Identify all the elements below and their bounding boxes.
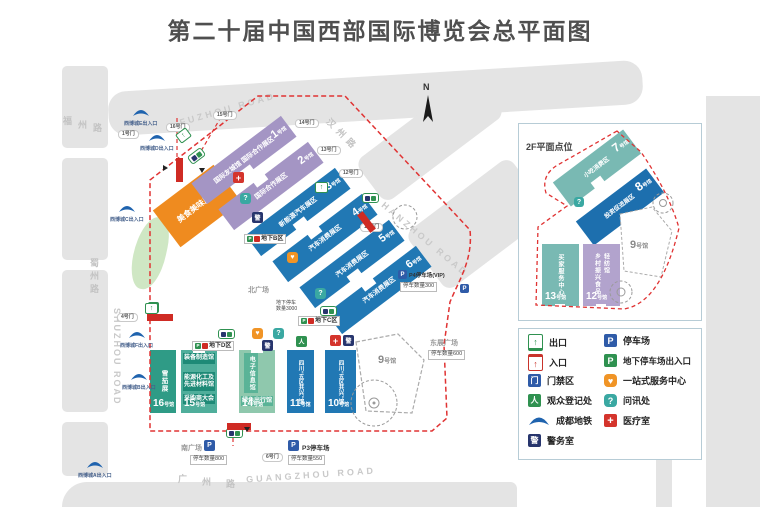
roundabout-center-dot: [373, 402, 376, 405]
hall-14-number: 14号馆: [242, 393, 263, 411]
road-guangzhou-cn: 州: [202, 475, 211, 488]
legend-registration-label: 观众登记处: [547, 394, 592, 407]
metro-logo-icon: [132, 108, 150, 117]
hall-9-outline: [356, 334, 424, 413]
gate-1: 1号门: [118, 130, 139, 139]
hall-16-number: 16号馆: [153, 393, 174, 411]
page-title: 第二十届中国西部国际博览会总平面图: [0, 12, 760, 46]
access-control-pill: [218, 329, 235, 339]
legend-police-label: 警务室: [547, 434, 574, 447]
police-icon: 警: [262, 340, 273, 351]
underground-zone-c-label: 地下C区: [315, 318, 337, 324]
metro-exit-d-label: 西博城D出入口: [140, 147, 174, 152]
legend-underground-parking-label: 地下停车场出入口: [623, 355, 691, 367]
police-icon: 警: [252, 212, 263, 223]
parking-icon: P: [398, 270, 407, 279]
medical-icon: +: [604, 414, 617, 427]
hall-14: 电子信息馆 绿色出行馆 14号馆: [239, 350, 275, 413]
hall-11-no: 11: [290, 398, 301, 409]
legend-access-control: 门 门禁区: [528, 374, 574, 387]
information-icon: ?: [574, 197, 584, 207]
legend-information: ? 问讯处: [604, 394, 650, 407]
underground-parking-icon: P: [195, 343, 201, 349]
road-fuzhou-cn: 路: [93, 121, 102, 134]
hall-14-zone-1-label: 电子信息馆: [248, 356, 255, 391]
gate-13: 13号门: [317, 146, 341, 155]
roundabout-outline: [351, 380, 397, 426]
hall-16-name: 雪茄展: [158, 370, 168, 393]
hall-9-inset-suffix: 号馆: [636, 244, 648, 250]
hall-notch: [555, 304, 565, 308]
city-block: [706, 96, 760, 507]
access-control-pill: [362, 193, 379, 203]
p3-parking-count: 停车数量550: [288, 455, 325, 465]
entrance-mini-icon: [202, 343, 208, 349]
hall-9-inset-label: 9号馆: [630, 235, 648, 253]
metro-logo-icon: [130, 372, 148, 381]
legend-one-stop: ♥ 一站式服务中心: [604, 374, 686, 387]
one-stop-service-icon: ♥: [252, 328, 263, 339]
one-stop-service-icon: ♥: [287, 252, 298, 263]
hall-15-suffix: 号馆: [195, 402, 205, 408]
access-control-pill: [320, 306, 337, 316]
camera-mini-icon: [227, 332, 232, 337]
visitor-registration-icon: 人: [296, 336, 307, 347]
metro-exit-b: 西博城B出入口: [122, 368, 156, 391]
legend-metro-label: 成都地铁: [556, 414, 592, 427]
police-icon: 警: [528, 434, 541, 447]
metro-exit-f-label: 西博城F出入口: [120, 344, 153, 349]
underground-parking-icon: P: [604, 354, 617, 367]
p4-parking-count: 停车数量300: [400, 282, 437, 292]
legend-parking-label: 停车场: [623, 334, 650, 347]
metro-exit-e-label: 西博城E出入口: [124, 122, 157, 127]
parking-icon: P: [204, 440, 215, 451]
road-fuzhou-cn: 州: [78, 118, 87, 131]
hall-15: 装备制造馆 能源化工及先进材料馆 采购商大会 15号馆: [181, 350, 217, 413]
entrance-mini-icon: [308, 318, 314, 324]
hall-9-label: 9号馆: [378, 350, 396, 368]
access-control-pill: [187, 147, 207, 165]
medical-icon: +: [233, 172, 244, 183]
hall-15-number: 15号馆: [184, 393, 205, 411]
entrance-bar: [147, 314, 173, 321]
information-icon: ?: [240, 193, 251, 204]
entrance-mini-icon: [254, 236, 260, 242]
camera-mini-icon: [235, 431, 240, 436]
hall-10: 四川“五区共兴”馆 10号馆: [325, 350, 356, 413]
hall-11: 四川“五区共兴”馆 11号馆: [287, 350, 314, 413]
legend-access-control-label: 门禁区: [547, 374, 574, 387]
road-guangzhou-cn: 路: [226, 477, 235, 490]
hall-13: 买家服务中心 13号馆: [542, 244, 579, 306]
hall-14-suffix: 号馆: [253, 402, 263, 408]
information-icon: ?: [273, 328, 284, 339]
metro-exit-a-label: 西博城A出入口: [78, 474, 112, 479]
exit-icon: ↑: [315, 182, 328, 193]
entrance-bar: [176, 158, 183, 182]
exit-icon: ↑: [528, 334, 543, 351]
east-parking-count: 停车数量600: [428, 350, 465, 360]
south-parking-count: 停车数量800: [190, 455, 227, 465]
legend-exit-label: 出口: [549, 336, 567, 349]
city-block: [62, 270, 108, 412]
one-stop-service-icon: ♥: [604, 374, 617, 387]
direction-arrow-icon: [199, 168, 205, 173]
hall-13-number: 13号馆: [545, 286, 566, 304]
gate-mini-icon: [365, 196, 370, 201]
hall-12-number: 12号馆: [586, 286, 607, 304]
metro-exit-c-label: 西博城C出入口: [110, 218, 144, 223]
road-fuzhou-cn: 福: [63, 114, 72, 127]
hall-14-zone-1: 电子信息馆: [244, 353, 258, 393]
underground-zone-b: P 地下B区: [244, 234, 286, 244]
legend-parking: P 停车场: [604, 334, 650, 347]
hall-11-suffix: 号馆: [301, 402, 311, 408]
road-shuzhou-cn: 蜀州路: [88, 258, 101, 297]
parking-icon: P: [460, 284, 469, 293]
hall-12-suffix: 号馆: [597, 295, 607, 301]
p3-parking-label: P3停车场: [302, 442, 329, 452]
metro-exit-d: 西博城D出入口: [140, 129, 174, 152]
gate-4: 4号门: [117, 313, 138, 322]
gate-mini-icon: [323, 309, 328, 314]
metro-exit-e: 西博城E出入口: [124, 104, 157, 127]
east-plaza-label: 东展广场: [430, 338, 458, 348]
gate-mini-icon: [229, 431, 234, 436]
city-block: [62, 482, 517, 507]
access-control-icon: 门: [528, 374, 541, 387]
metro-exit-a: 西博城A出入口: [78, 456, 112, 479]
hall-16-no: 16: [153, 398, 164, 409]
underground-parking-icon: P: [301, 318, 307, 324]
hall-15-zone-2: 能源化工及先进材料馆: [183, 372, 215, 391]
legend-entrance-label: 入口: [549, 356, 567, 369]
parking-icon: P: [288, 440, 299, 451]
hall-15-no: 15: [184, 398, 195, 409]
camera-mini-icon: [329, 309, 334, 314]
hall-5-suffix: 号馆: [385, 230, 397, 241]
hall-11-number: 11号馆: [290, 393, 311, 411]
road-shuzhou-en: SHUZHOU ROAD: [112, 308, 122, 406]
map-canvas: 第二十届中国西部国际博览会总平面图 福 州 路 FUZHOU ROAD 蜀州路 …: [0, 0, 760, 507]
legend-registration: 人 观众登记处: [528, 394, 592, 407]
hall-notch: [596, 304, 606, 308]
compass-n-label: N: [423, 82, 430, 92]
roundabout-center: [369, 398, 379, 408]
metro-exit-c: 西博城C出入口: [110, 200, 144, 223]
underground-parking-note: 地下停车 数量3000: [274, 300, 299, 313]
underground-zone-b-label: 地下B区: [261, 236, 283, 242]
hall-9-suffix: 号馆: [384, 359, 396, 365]
underground-zone-d: P 地下D区: [192, 341, 234, 351]
metro-exit-b-label: 西博城B出入口: [122, 386, 156, 391]
gate-15: 15号门: [213, 111, 237, 120]
legend-medical: + 医疗室: [604, 414, 650, 427]
underground-zone-d-label: 地下D区: [209, 343, 231, 349]
south-plaza-label: 南广场: [181, 443, 202, 453]
exit-icon: ↑: [145, 303, 158, 314]
hall-15-zone-1: 装备制造馆: [183, 353, 215, 364]
police-icon: 警: [343, 335, 354, 346]
legend-underground-parking: P 地下停车场出入口: [604, 354, 691, 367]
hall-1-suffix: 号馆: [277, 126, 289, 137]
visitor-registration-icon: 人: [528, 394, 541, 407]
hall-13-no: 13: [545, 291, 556, 302]
legend-entrance: ↑ 入口: [528, 354, 567, 371]
hall-7-suffix: 号馆: [619, 139, 631, 150]
north-plaza-label: 北广场: [248, 285, 269, 295]
hall-2-suffix: 号馆: [304, 152, 316, 163]
hall-16-suffix: 号馆: [164, 402, 174, 408]
hall-12-no: 12: [586, 291, 597, 302]
metro-logo-icon: [528, 415, 550, 426]
camera-mini-icon: [371, 196, 376, 201]
hall-10-no: 10: [328, 398, 339, 409]
hall-8-suffix: 号馆: [642, 178, 654, 189]
inset-2f-title: 2F平面点位: [526, 140, 573, 153]
metro-logo-icon: [148, 133, 166, 142]
metro-exit-f: 西博城F出入口: [120, 326, 153, 349]
gate-12: 12号门: [339, 169, 363, 178]
information-icon: ?: [604, 394, 617, 407]
underground-parking-icon: P: [247, 236, 253, 242]
hall-6-suffix: 号馆: [412, 256, 424, 267]
p4-parking-label: P4停车场(VIP): [409, 271, 445, 279]
gate-14: 14号门: [295, 119, 319, 128]
hall-13-suffix: 号馆: [556, 295, 566, 301]
legend-information-label: 问讯处: [623, 394, 650, 407]
entrance-icon: ↑: [528, 354, 543, 371]
gate-mini-icon: [221, 332, 226, 337]
legend-police: 警 警务室: [528, 434, 574, 447]
legend-exit: ↑ 出口: [528, 334, 567, 351]
hall-10-suffix: 号馆: [339, 402, 349, 408]
legend-medical-label: 医疗室: [623, 414, 650, 427]
hall-14-no: 14: [242, 398, 253, 409]
city-block: [62, 158, 108, 260]
metro-logo-icon: [128, 330, 146, 339]
legend-metro: 成都地铁: [528, 414, 592, 427]
hall-3-suffix: 号馆: [331, 178, 343, 189]
metro-logo-icon: [118, 204, 136, 213]
direction-arrow-icon: [163, 165, 168, 171]
hall-10-number: 10号馆: [328, 393, 349, 411]
road-guangzhou-cn: 广: [178, 472, 187, 485]
medical-icon: +: [330, 335, 341, 346]
legend-one-stop-label: 一站式服务中心: [623, 374, 686, 387]
gate-6: 6号门: [262, 453, 283, 462]
city-block: [62, 66, 108, 148]
metro-logo-icon: [86, 460, 104, 469]
parking-icon: P: [604, 334, 617, 347]
direction-arrow-icon: [244, 427, 250, 432]
underground-zone-c: P 地下C区: [298, 316, 340, 326]
underground-parking-note-2: 数量3000: [276, 307, 297, 313]
hall-12: 乡村振兴食品轻纺馆 12号馆: [583, 244, 620, 306]
information-icon: ?: [315, 288, 326, 299]
